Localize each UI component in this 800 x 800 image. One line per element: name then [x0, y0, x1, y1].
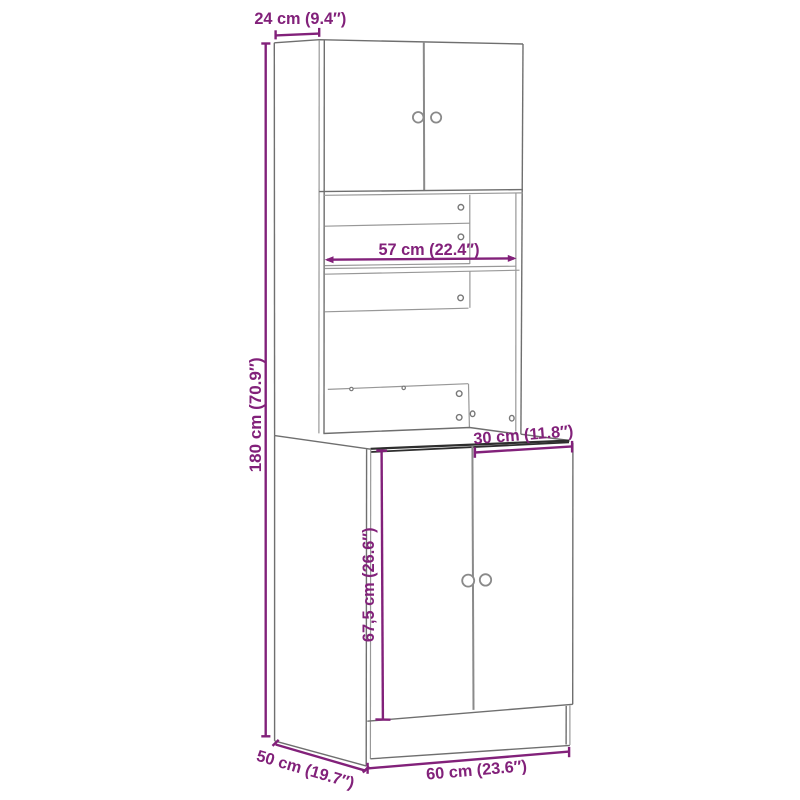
svg-text:180 cm (70.9″): 180 cm (70.9″) — [246, 357, 265, 472]
svg-text:24 cm (9.4″): 24 cm (9.4″) — [254, 10, 346, 28]
svg-text:57 cm (22.4″): 57 cm (22.4″) — [378, 241, 479, 259]
svg-text:67,5 cm (26.6″): 67,5 cm (26.6″) — [360, 527, 378, 642]
